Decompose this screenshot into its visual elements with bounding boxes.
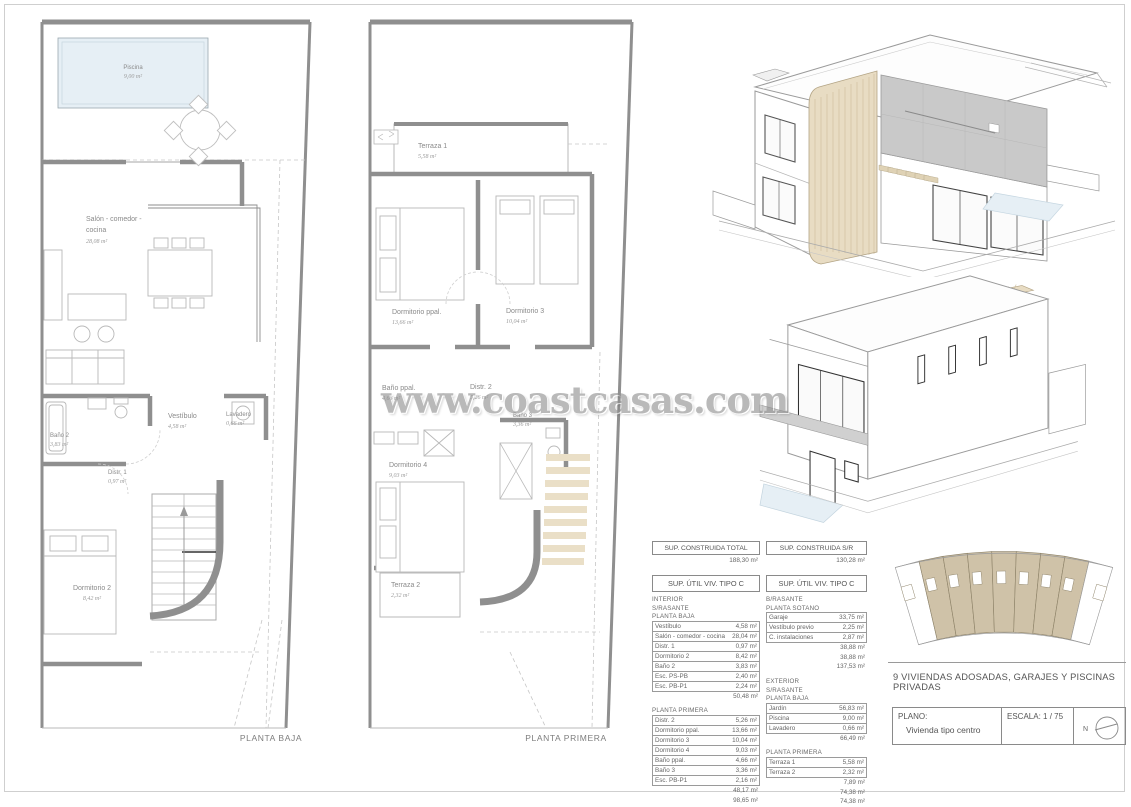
- table-row: 38,88 m²: [766, 643, 867, 653]
- wood-slat-tower: [809, 71, 877, 264]
- sup-construida-sr-value: 130,28 m²: [766, 555, 867, 564]
- table-row: Esc. PB-P12,24 m²: [652, 681, 760, 692]
- watermark: www.coastcasas.com: [381, 378, 788, 422]
- dining-table: [148, 238, 212, 308]
- room-area-piscina: 9,00 m²: [124, 74, 142, 80]
- table-column-right: SUP. CONSTRUIDA S/R 130,28 m² SUP. ÚTIL …: [766, 541, 867, 807]
- table-row: INTERIOR: [652, 596, 760, 605]
- room-label-dorm3: Dormitorio 3: [506, 308, 544, 315]
- table-row: Esc. PB-P12,16 m²: [652, 775, 760, 786]
- util-table-left-rows: INTERIORS/RASANTEPLANTA BAJAVestíbulo4,5…: [652, 596, 760, 805]
- room-area-bano2: 3,83 m²: [49, 442, 68, 448]
- north-letter: N: [1083, 726, 1088, 733]
- table-row: 48,17 m²: [652, 786, 760, 796]
- table-row: 38,88 m²: [766, 653, 867, 663]
- sup-construida-sr-header: SUP. CONSTRUIDA S/R: [766, 541, 867, 555]
- terraza1: Terraza 1 5,58 m²: [374, 124, 568, 174]
- escala-cell: ESCALA: 1 / 75: [1002, 708, 1074, 744]
- caption-planta-baja: PLANTA BAJA: [201, 733, 341, 743]
- floorplan-planta-primera: Terraza 1 5,58 m² Dormitorio ppal. 13,66…: [360, 12, 640, 734]
- north-cell: N: [1074, 708, 1125, 744]
- table-row: 98,65 m²: [652, 796, 760, 806]
- util-table-right-header: SUP. ÚTIL VIV. TIPO C: [766, 575, 867, 592]
- room-area-terraza1: 5,58 m²: [418, 154, 436, 160]
- floorplan-planta-baja: Piscina 9,00 m² Salón - comedor - cocina…: [30, 12, 325, 734]
- table-row: C. instalaciones2,87 m²: [766, 632, 867, 643]
- room-label-piscina: Piscina: [123, 65, 143, 71]
- room-area-dormppal: 13,66 m²: [392, 320, 413, 326]
- room-area-dormitorio2: 8,42 m²: [83, 595, 101, 602]
- table-row: 50,48 m²: [652, 692, 760, 702]
- beds-dorm3: [496, 196, 578, 284]
- room-area-dorm3: 10,04 m²: [506, 318, 527, 325]
- room-label-vestibulo: Vestíbulo: [168, 413, 197, 420]
- table-row: 137,53 m²: [766, 662, 867, 672]
- side-wall: [1047, 165, 1099, 191]
- room-area-terraza2: 2,32 m²: [391, 593, 409, 599]
- title-block: 9 VIVIENDAS ADOSADAS, GARAJES Y PISCINAS…: [888, 662, 1126, 747]
- room-label-terraza1: Terraza 1: [418, 143, 447, 150]
- site-plan-thumbnail: [892, 546, 1116, 649]
- plano-cell: PLANO: Vivienda tipo centro: [893, 708, 1002, 744]
- table-row: 74,38 m²: [766, 788, 867, 798]
- bed-dormitorio2: [44, 530, 116, 634]
- banoppal-fixtures: [374, 430, 454, 456]
- table-row: Lavadero0,66 m²: [766, 723, 867, 734]
- bed-dorm4: [376, 482, 464, 572]
- room-label-dorm4: Dormitorio 4: [389, 462, 427, 469]
- axon-view-front: [695, 15, 1120, 277]
- util-table-right-rows: B/RASANTEPLANTA SOTANOGaraje33,75 m²Vest…: [766, 596, 867, 807]
- room-label-lavadero: Lavadero: [226, 412, 252, 418]
- plano-value: Vivienda tipo centro: [906, 725, 1001, 735]
- table-column-left: SUP. CONSTRUIDA TOTAL 188,30 m² SUP. ÚTI…: [652, 541, 760, 805]
- room-area-dorm4: 9,03 m²: [389, 473, 407, 479]
- stairs: [150, 480, 220, 620]
- sup-construida-total-header: SUP. CONSTRUIDA TOTAL: [652, 541, 760, 555]
- stairwell: [480, 443, 590, 602]
- room-area-distr1: 0,97 m²: [108, 479, 126, 485]
- table-row: 74,38 m²: [766, 797, 867, 807]
- table-row: 7,89 m²: [766, 778, 867, 788]
- title-block-box: PLANO: Vivienda tipo centro ESCALA: 1 / …: [892, 707, 1126, 745]
- escala-value: 1 / 75: [1043, 712, 1063, 721]
- garden-fence: [713, 191, 755, 229]
- side-wall: [1049, 364, 1086, 433]
- bed-dormppal: [376, 208, 464, 300]
- handrail-opening: [989, 123, 999, 133]
- util-table-left-header: SUP. ÚTIL VIV. TIPO C: [652, 575, 760, 592]
- room-area-vestibulo: 4,58 m²: [168, 423, 186, 430]
- room-label-salon: Salón - comedor -: [86, 216, 142, 223]
- room-label-dormitorio2: Dormitorio 2: [73, 585, 111, 592]
- table-row: S/RASANTE: [652, 605, 760, 614]
- plano-label: PLANO:: [898, 712, 927, 721]
- north-arrow-icon: N: [1081, 713, 1123, 743]
- escala-label: ESCALA:: [1007, 712, 1041, 721]
- table-row: B/RASANTE: [766, 596, 867, 605]
- pool: Piscina 9,00 m²: [58, 38, 208, 108]
- bano3-fixtures: [546, 428, 560, 458]
- table-row: S/RASANTE: [766, 687, 867, 696]
- axon-view-rear: [753, 272, 1131, 534]
- room-label-terraza2: Terraza 2: [391, 582, 420, 589]
- sup-construida-total-value: 188,30 m²: [652, 555, 760, 564]
- room-label-dormppal: Dormitorio ppal.: [392, 309, 441, 316]
- caption-planta-primera: PLANTA PRIMERA: [496, 733, 636, 743]
- room-area-bano3: 3,36 m²: [512, 422, 531, 428]
- room-label-bano2: Baño 2: [50, 433, 70, 439]
- room-area-salon: 28,08 m²: [86, 239, 107, 245]
- table-row: EXTERIOR: [766, 678, 867, 687]
- kitchen: [44, 250, 126, 342]
- sofa: [46, 350, 124, 384]
- room-label-salon-2: cocina: [86, 227, 106, 234]
- project-title: 9 VIVIENDAS ADOSADAS, GARAJES Y PISCINAS…: [893, 672, 1124, 692]
- table-row: Terraza 22,32 m²: [766, 767, 867, 778]
- room-area-lavadero: 0,66 m²: [226, 421, 244, 427]
- table-row: 66,49 m²: [766, 734, 867, 744]
